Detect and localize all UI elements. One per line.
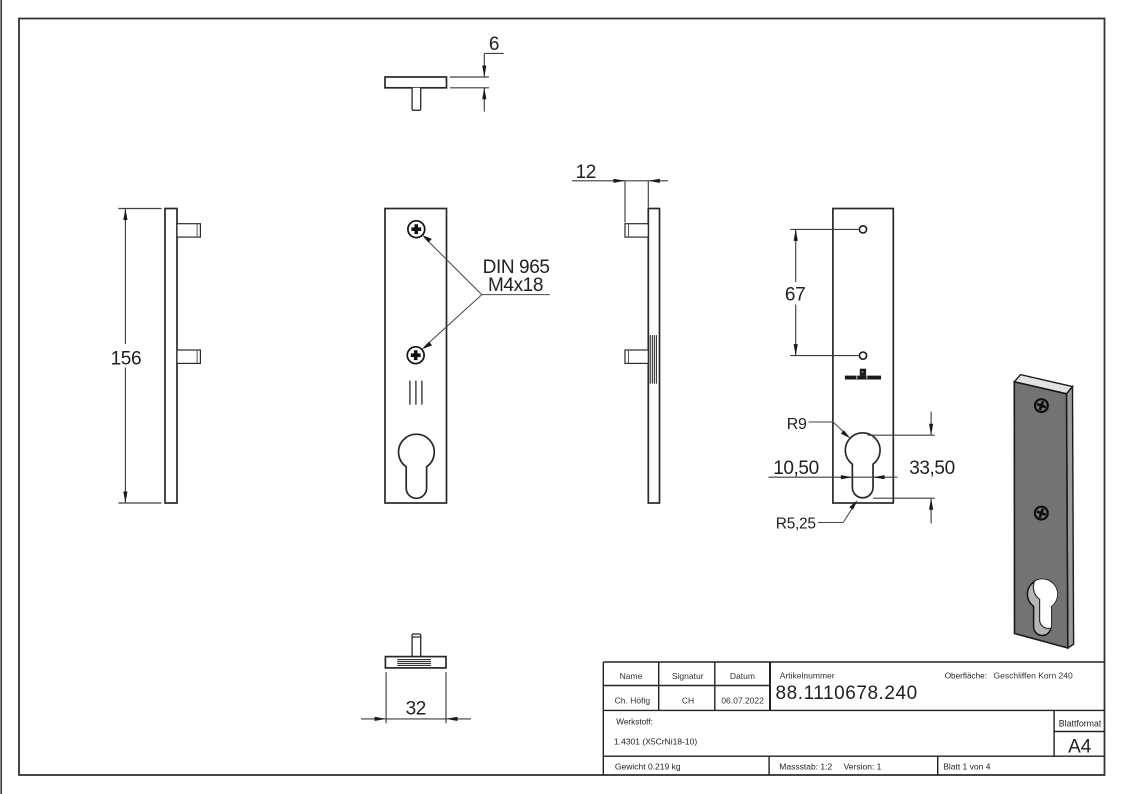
svg-text:R9: R9: [787, 416, 807, 433]
svg-text:Datum: Datum: [730, 671, 755, 681]
svg-text:156: 156: [111, 349, 142, 370]
svg-text:33,50: 33,50: [909, 458, 955, 479]
svg-text:Signatur: Signatur: [672, 671, 704, 681]
svg-text:Name: Name: [620, 671, 643, 681]
svg-text:A4: A4: [1068, 736, 1092, 757]
svg-text:88.1110678.240: 88.1110678.240: [776, 683, 918, 704]
svg-text:Version: 1: Version: 1: [844, 762, 882, 772]
svg-text:Artikelnummer: Artikelnummer: [780, 671, 835, 681]
svg-text:R5,25: R5,25: [776, 515, 816, 532]
svg-text:Blattformat: Blattformat: [1059, 719, 1102, 729]
svg-text:Werkstoff:: Werkstoff:: [616, 718, 653, 727]
svg-text:12: 12: [576, 162, 596, 183]
svg-text:Oberfläche:: Oberfläche:: [945, 672, 987, 681]
svg-text:Blatt 1 von 4: Blatt 1 von 4: [943, 762, 991, 772]
svg-text:10,50: 10,50: [773, 458, 819, 479]
svg-text:Gewicht 0.219 kg: Gewicht 0.219 kg: [615, 762, 681, 772]
svg-text:6: 6: [489, 34, 499, 55]
svg-text:32: 32: [406, 698, 426, 719]
svg-text:Geschliffen Korn 240: Geschliffen Korn 240: [994, 671, 1073, 681]
svg-text:CH: CH: [682, 695, 694, 705]
svg-text:M4x18: M4x18: [488, 275, 543, 296]
svg-text:06.07.2022: 06.07.2022: [721, 695, 764, 705]
svg-text:1.4301 (X5CrNi18-10): 1.4301 (X5CrNi18-10): [614, 737, 697, 747]
svg-text:67: 67: [785, 284, 805, 305]
svg-text:Ch. Höfig: Ch. Höfig: [615, 695, 651, 705]
svg-text:Massstab: 1:2: Massstab: 1:2: [779, 762, 832, 772]
